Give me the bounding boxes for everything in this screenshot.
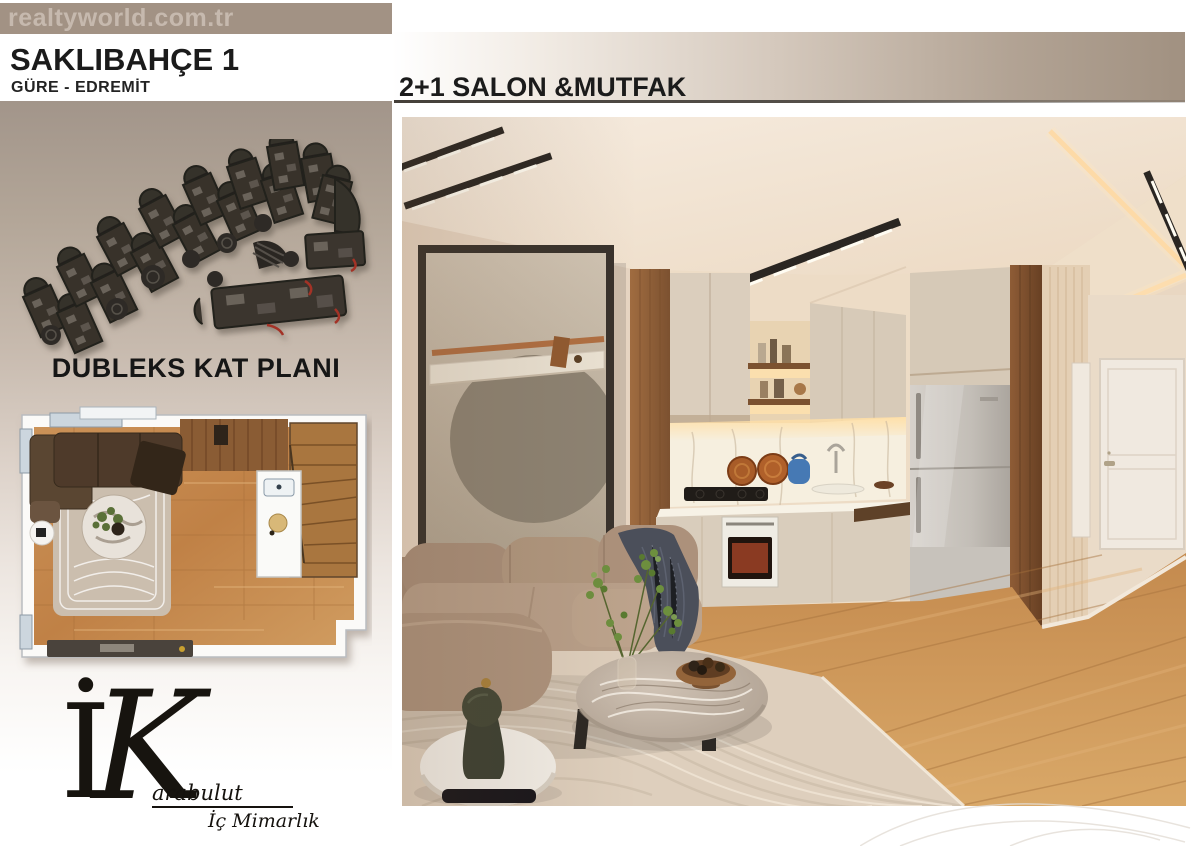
sidebar: realtyworld.com.tr SAKLIBAHÇE 1 GÜRE - E… <box>0 0 392 848</box>
logo-name: arabulut <box>152 781 293 808</box>
watermark-bar: realtyworld.com.tr <box>0 3 392 34</box>
floor-plan-caption: DUBLEKS KAT PLANI <box>0 353 392 384</box>
interior-render <box>402 117 1186 806</box>
brochure-page: realtyworld.com.tr SAKLIBAHÇE 1 GÜRE - E… <box>0 0 1200 848</box>
site-plan-drawing <box>5 139 387 361</box>
heading-underline <box>394 100 1185 103</box>
floor-plan-image <box>14 405 372 672</box>
ghost-watermark <box>860 800 1195 846</box>
sidebar-body: DUBLEKS KAT PLANI <box>0 101 392 848</box>
watermark-text: realtyworld.com.tr <box>0 4 234 33</box>
logo-tagline: İç Mimarlık <box>208 810 320 832</box>
title-block: SAKLIBAHÇE 1 GÜRE - EDREMİT <box>0 34 392 101</box>
project-location: GÜRE - EDREMİT <box>11 79 150 97</box>
logo: İ K arabulut İç Mimarlık <box>50 686 360 846</box>
project-title: SAKLIBAHÇE 1 <box>10 42 239 78</box>
room-heading: 2+1 SALON &MUTFAK <box>399 72 686 103</box>
